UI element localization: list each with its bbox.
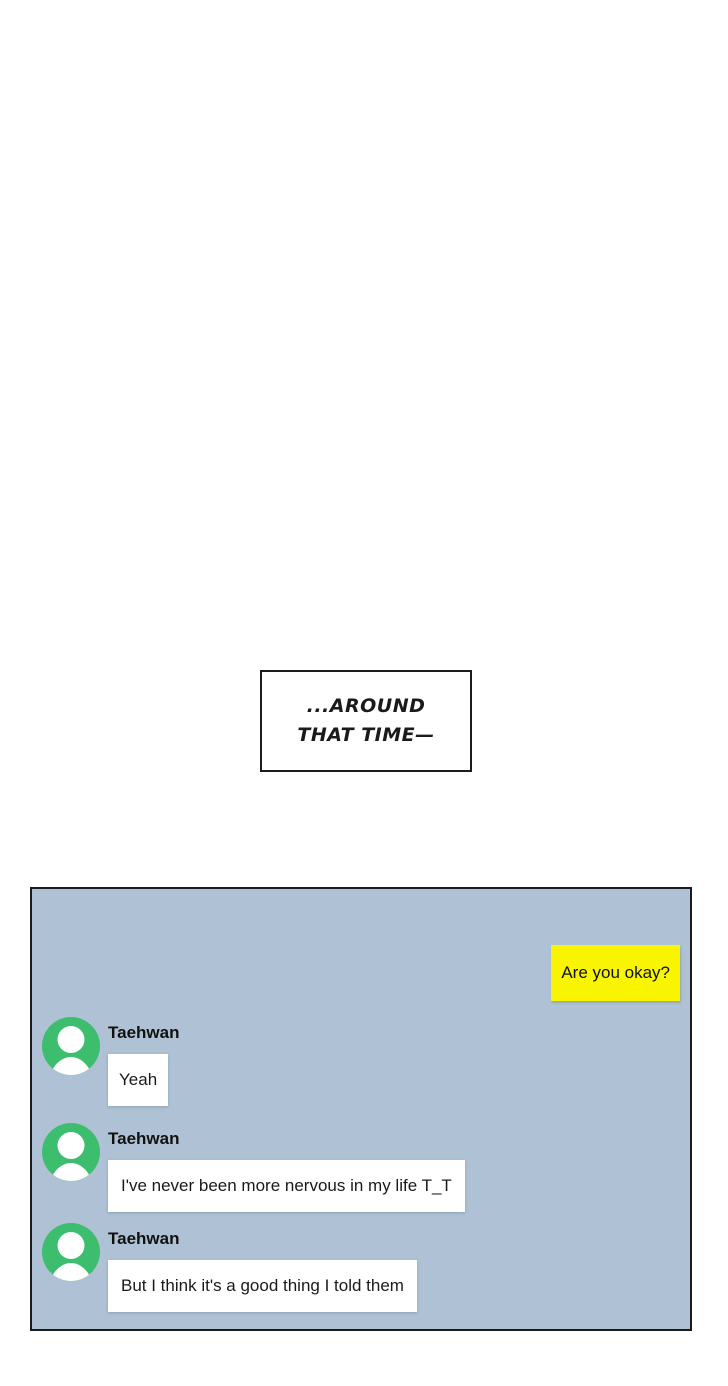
avatar-head-shape (58, 1132, 85, 1159)
sender-name: Taehwan (108, 1123, 465, 1149)
outgoing-message-bubble: Are you okay? (551, 945, 680, 1001)
avatar-torso-shape (47, 1163, 95, 1181)
sender-name: Taehwan (108, 1017, 179, 1043)
incoming-message-bubble: I've never been more nervous in my life … (108, 1160, 465, 1212)
user-avatar-icon (42, 1017, 100, 1075)
message-content: Taehwan Yeah (108, 1017, 179, 1106)
avatar-head-shape (58, 1026, 85, 1053)
user-avatar-icon (42, 1123, 100, 1181)
incoming-message-bubble: Yeah (108, 1054, 168, 1106)
message-content: Taehwan But I think it's a good thing I … (108, 1223, 417, 1312)
chat-panel: Are you okay? Taehwan Yeah Taehwan I've … (30, 887, 692, 1331)
user-avatar-icon (42, 1223, 100, 1281)
avatar-torso-shape (47, 1057, 95, 1075)
narration-caption-box: ...AROUND THAT TIME— (260, 670, 472, 772)
narration-caption-text: ...AROUND THAT TIME— (297, 692, 434, 750)
avatar-head-shape (58, 1232, 85, 1259)
incoming-message-bubble: But I think it's a good thing I told the… (108, 1260, 417, 1312)
avatar-torso-shape (47, 1263, 95, 1281)
message-content: Taehwan I've never been more nervous in … (108, 1123, 465, 1212)
sender-name: Taehwan (108, 1223, 417, 1249)
